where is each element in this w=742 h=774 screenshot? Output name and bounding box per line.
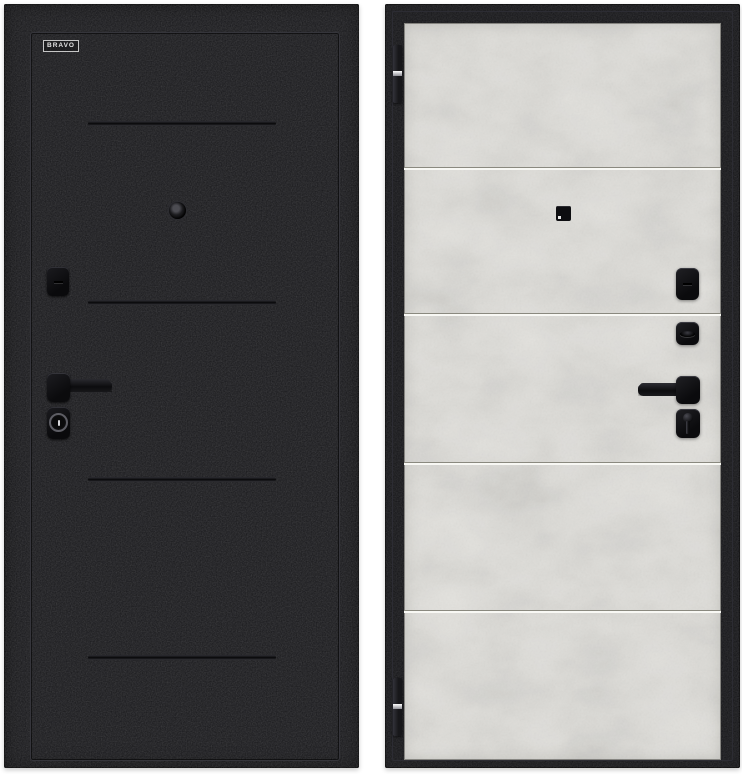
peephole-icon: [169, 202, 186, 219]
key-stem-icon: [686, 421, 690, 434]
door-groove: [88, 477, 276, 482]
deadbolt-cover: [676, 268, 699, 300]
keyhole-icon: [58, 420, 60, 426]
panel-divider: [404, 610, 721, 613]
cylinder-ring: [49, 413, 68, 432]
thumbturn-knob: [680, 331, 695, 337]
key-cylinder-escutcheon: [47, 407, 70, 439]
thumbturn: [676, 322, 699, 345]
door-panel-outline: [30, 32, 340, 761]
door-groove: [88, 655, 276, 660]
handle-rose: [676, 376, 700, 404]
hinge-pin: [393, 71, 402, 76]
hinge-bottom: [393, 678, 402, 736]
handle-rose: [47, 373, 70, 402]
product-photo-doors: BRAVO: [0, 0, 742, 774]
peephole-glint: [558, 216, 561, 219]
panel-divider: [404, 167, 721, 170]
door-groove: [88, 300, 276, 305]
door-exterior-side: BRAVO: [4, 4, 359, 768]
door-groove: [88, 121, 276, 126]
door-interior-side: [385, 4, 740, 768]
panel-divider: [404, 313, 721, 316]
deadbolt-slot: [54, 281, 63, 283]
panel-divider: [404, 462, 721, 465]
hinge-pin: [393, 704, 402, 709]
deadbolt-slot: [683, 283, 692, 285]
brand-logo: BRAVO: [43, 40, 79, 52]
key-cylinder-escutcheon: [676, 409, 700, 438]
hinge-top: [393, 45, 402, 103]
peephole-cover-icon: [556, 206, 571, 221]
deadbolt-cover: [47, 267, 69, 296]
